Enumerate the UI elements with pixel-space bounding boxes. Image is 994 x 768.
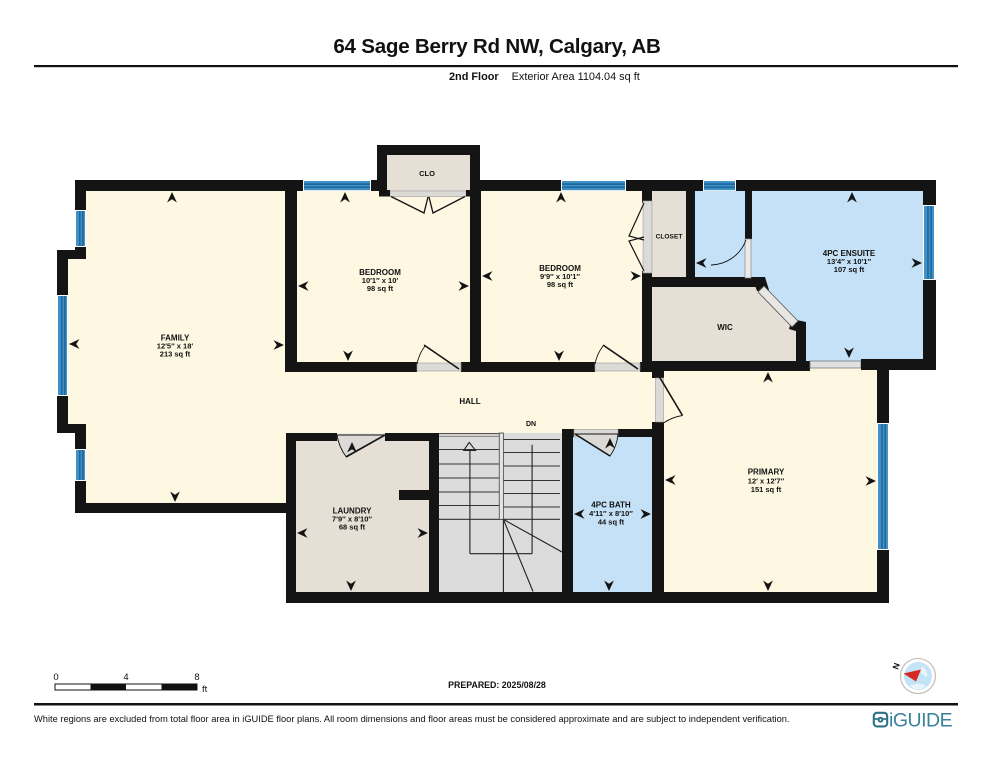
svg-text:151 sq ft: 151 sq ft [751, 485, 782, 494]
svg-text:HALL: HALL [459, 397, 480, 406]
svg-text:PRIMARY: PRIMARY [748, 468, 785, 477]
svg-text:ft: ft [202, 684, 208, 695]
svg-text:107 sq ft: 107 sq ft [834, 265, 865, 274]
svg-text:2nd FloorExterior Area 1104.04: 2nd FloorExterior Area 1104.04 sq ft [449, 71, 640, 83]
svg-text:213 sq ft: 213 sq ft [160, 350, 191, 359]
svg-text:CLOSET: CLOSET [656, 234, 683, 241]
svg-text:CLO: CLO [419, 169, 435, 178]
svg-text:68 sq ft: 68 sq ft [339, 523, 366, 532]
svg-text:44 sq ft: 44 sq ft [598, 518, 625, 527]
svg-text:DN: DN [526, 421, 536, 428]
svg-text:8: 8 [194, 672, 199, 683]
svg-text:64 Sage Berry Rd NW, Calgary,: 64 Sage Berry Rd NW, Calgary, AB [333, 35, 660, 58]
svg-text:WIC: WIC [717, 323, 733, 332]
svg-text:0: 0 [53, 672, 58, 683]
svg-text:iGUIDE: iGUIDE [889, 710, 953, 732]
svg-text:4: 4 [123, 672, 128, 683]
svg-text:98 sq ft: 98 sq ft [547, 280, 574, 289]
svg-text:PREPARED: 2025/08/28: PREPARED: 2025/08/28 [448, 680, 546, 690]
svg-text:98 sq ft: 98 sq ft [367, 284, 394, 293]
svg-text:White regions are excluded fro: White regions are excluded from total fl… [34, 714, 790, 724]
